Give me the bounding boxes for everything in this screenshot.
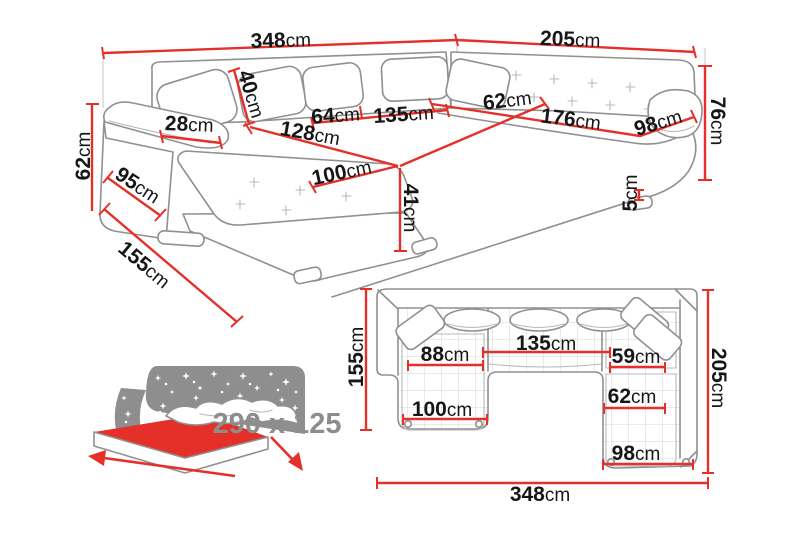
left-arm-foot [158, 230, 205, 246]
dim-label-98cm-plan: 98cm [612, 442, 661, 465]
dim-label-5cm: 5cm [619, 174, 642, 211]
plan-view: 155cm 205cm 348cm 88cm 135cm 59cm 100cm … [345, 288, 730, 506]
dim-label-59cm-plan: 59cm [612, 345, 661, 368]
dim-label-28cm: 28cm [164, 112, 213, 137]
arrow-width [271, 437, 294, 461]
dim-label-62cm-plan: 62cm [608, 385, 657, 408]
dim-label-100cm-plan: 100cm [412, 398, 472, 421]
dim-label-41cm: 41cm [399, 184, 422, 233]
dim-label-155cm: 155cm [114, 237, 175, 293]
leg [476, 421, 482, 427]
diagram-canvas: 348cm 205cm 62cm 155cm 95cm 28cm 40cm 64… [0, 0, 800, 533]
dim-label-76cm: 76cm [706, 97, 729, 146]
dim-label-155cm-plan: 155cm [345, 327, 368, 387]
leg [405, 421, 411, 427]
sleeping-function-icon: 290 x 125 [88, 366, 342, 476]
pillow [381, 56, 449, 101]
dim-label-135cm: 135cm [373, 101, 435, 128]
perspective-view: 348cm 205cm 62cm 155cm 95cm 28cm 40cm 64… [72, 27, 729, 327]
dim-label-348cm-plan: 348cm [510, 483, 570, 506]
dim-label-135cm-plan: 135cm [516, 332, 576, 355]
arrow-length-head [88, 450, 106, 466]
dim-label-62cm-left: 62cm [72, 132, 95, 181]
dim-label-88cm-plan: 88cm [421, 343, 470, 366]
sleeping-area-label: 290 x 125 [212, 408, 341, 440]
chaise-top-cushion [178, 151, 413, 225]
sofa-dimension-diagram: 348cm 205cm 62cm 155cm 95cm 28cm 40cm 64… [0, 0, 800, 533]
dim-label-205cm-plan: 205cm [707, 348, 730, 408]
dim-label-348cm: 348cm [250, 28, 311, 53]
arrow-width-head [288, 452, 303, 471]
dim-label-205cm: 205cm [540, 27, 601, 52]
right-wing-corner [640, 129, 696, 199]
